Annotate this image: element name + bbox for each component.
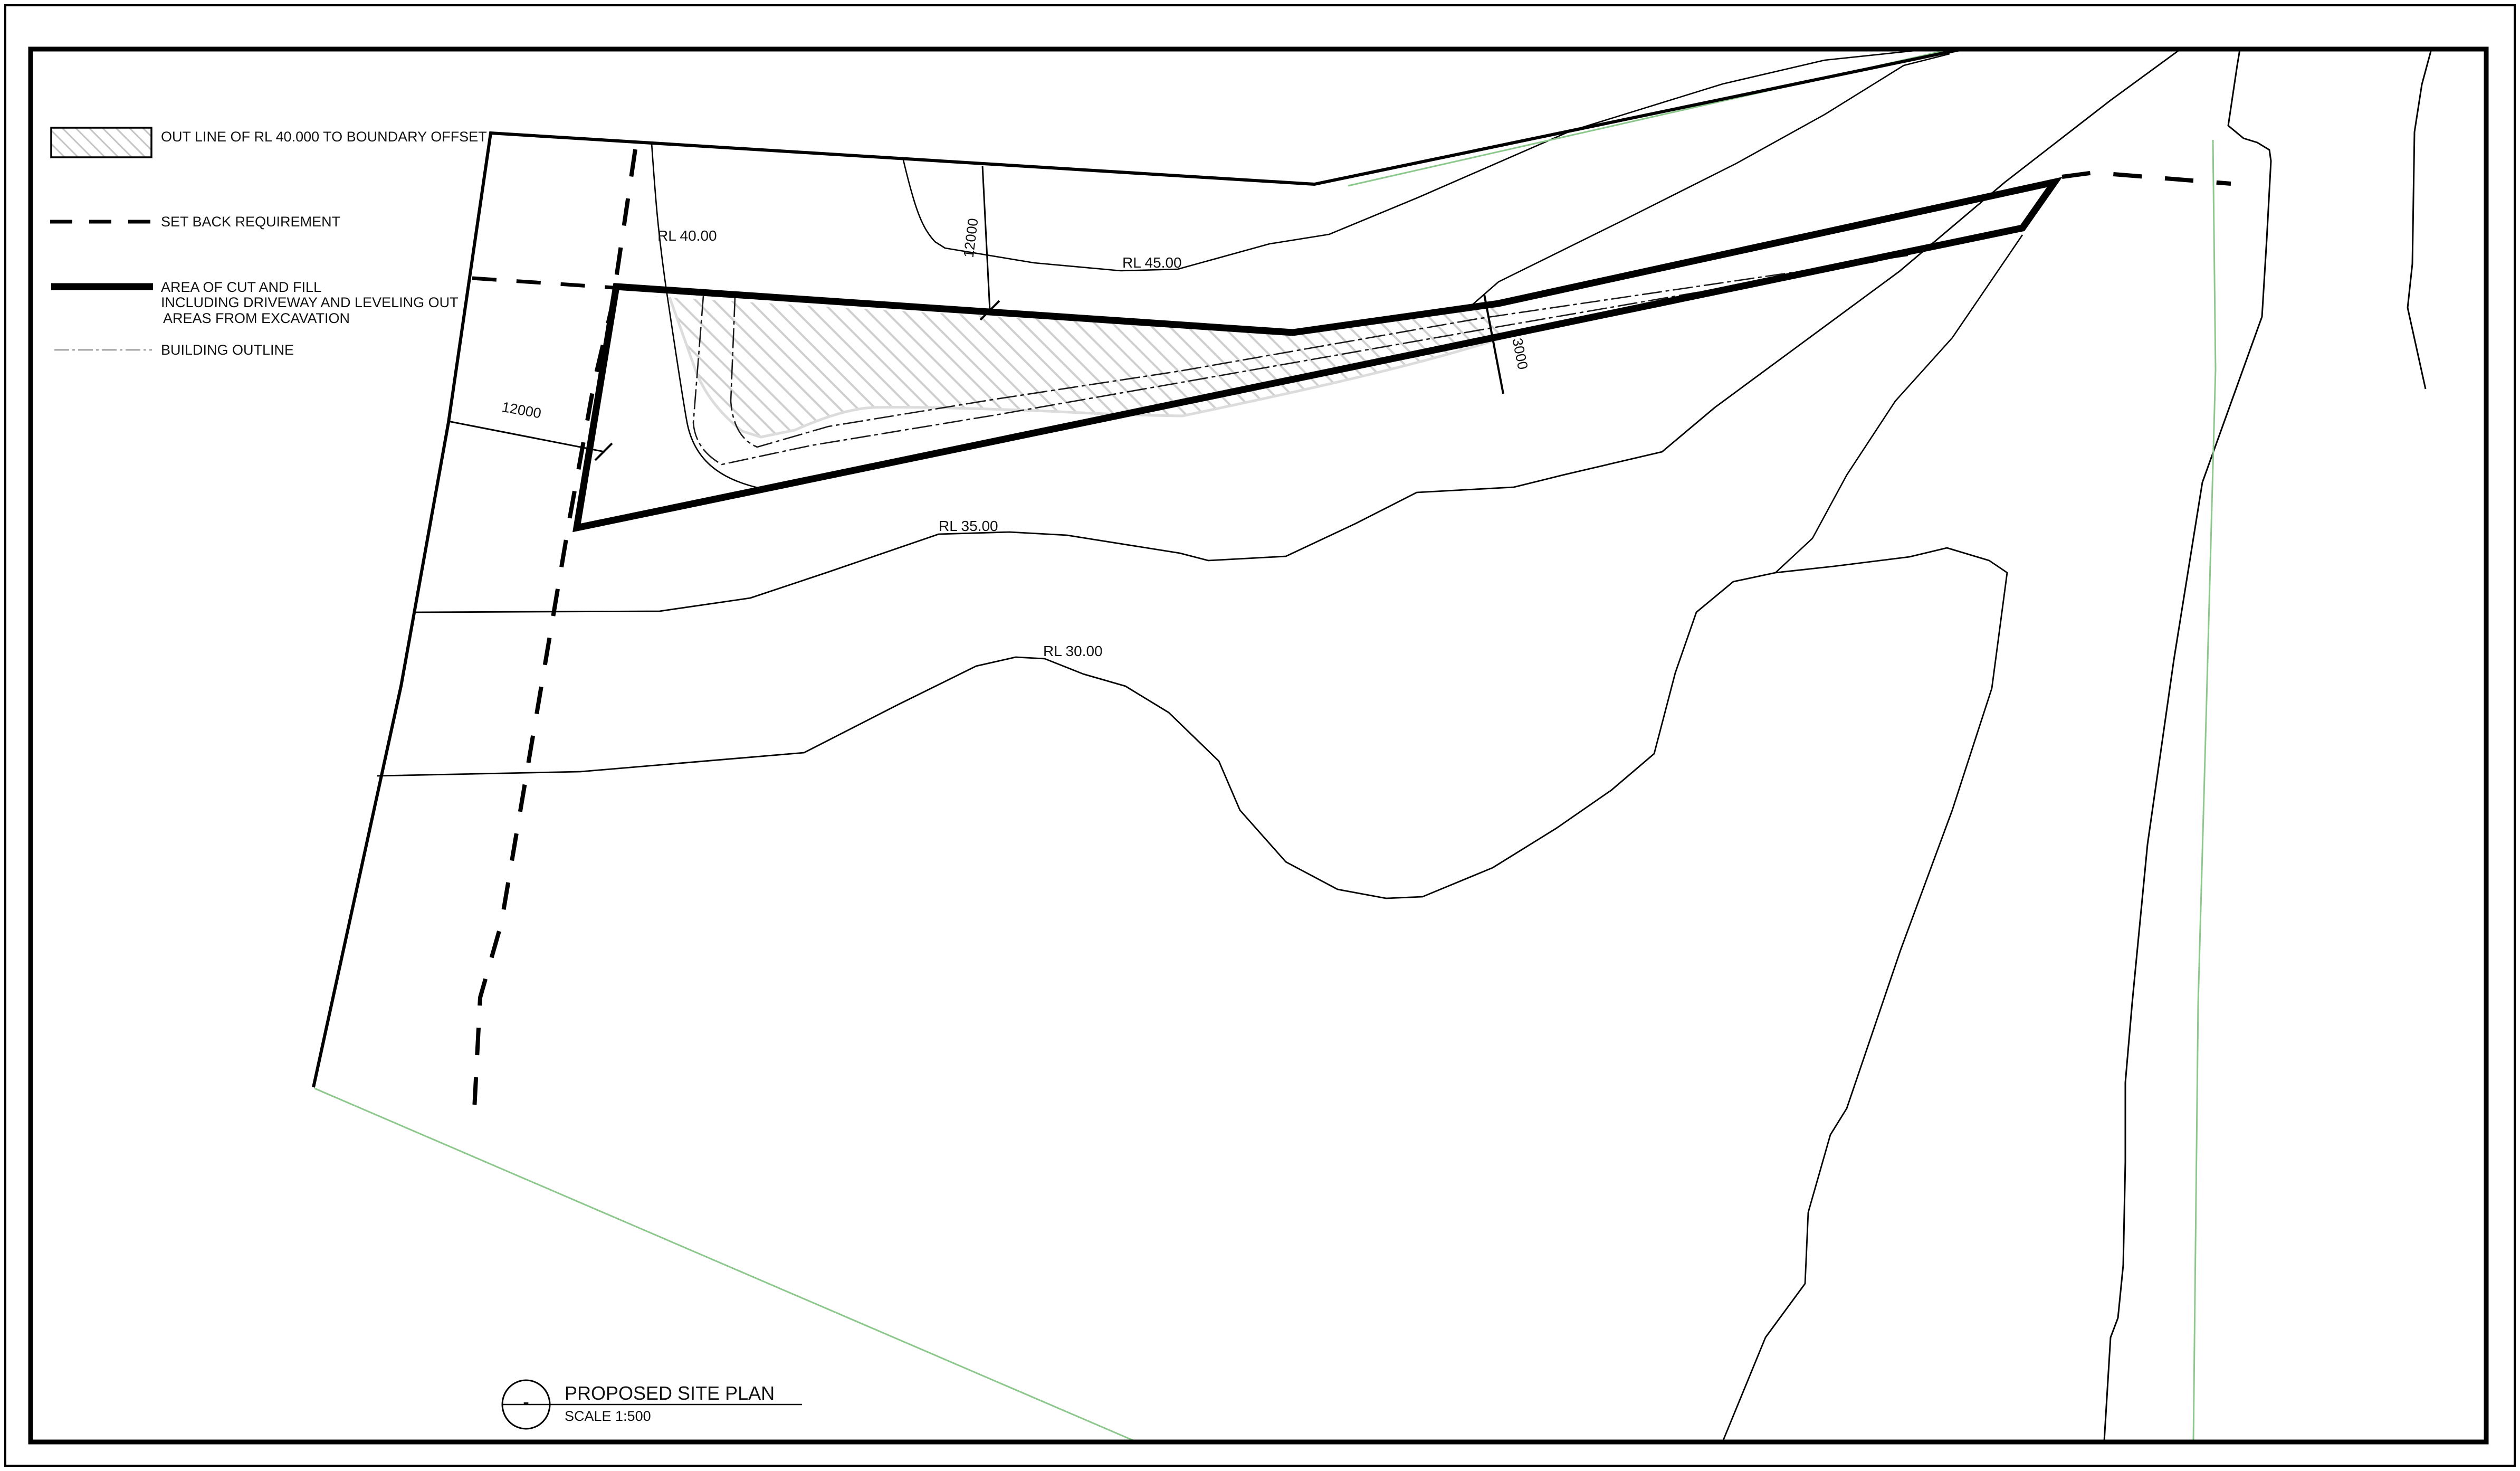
dimension-corridor-width-text: 3000 — [1509, 337, 1531, 371]
sheet-border-inner — [31, 49, 2486, 1442]
drawing-reference-symbol: - — [523, 1392, 529, 1412]
contour-label-rl40: RL 40.00 — [657, 227, 717, 244]
green-line-right — [2193, 140, 2216, 1441]
legend-label-setback: SET BACK REQUIREMENT — [161, 214, 340, 230]
dimension-left-offset-text: 12000 — [501, 399, 542, 422]
setback-dashed-horizontal — [472, 278, 614, 288]
page-title: PROPOSED SITE PLAN — [565, 1382, 775, 1404]
contour-label-rl45: RL 45.00 — [1122, 254, 1182, 271]
contour-rl40-right — [1473, 54, 1950, 304]
contour-label-rl30: RL 30.00 — [1043, 643, 1103, 659]
contour-rl30 — [377, 548, 2007, 1441]
title-block: - PROPOSED SITE PLAN SCALE 1:500 — [502, 1380, 802, 1429]
legend-label-cut-fill-line2: INCLUDING DRIVEWAY AND LEVELING OUT — [161, 295, 459, 310]
legend-label-building-outline: BUILDING OUTLINE — [161, 342, 294, 358]
legend-item-setback: SET BACK REQUIREMENT — [50, 214, 340, 230]
legend-label-cut-fill-line3: AREAS FROM EXCAVATION — [163, 310, 350, 326]
site-plan-canvas: 12000 12000 3000 RL 40.00 RL 45.00 RL 35… — [0, 0, 2520, 1471]
site-plan-page: 12000 12000 3000 RL 40.00 RL 45.00 RL 35… — [0, 0, 2520, 1471]
creek-line-left — [2104, 50, 2271, 1441]
hatched-box-icon — [51, 128, 151, 157]
legend-item-building-outline: BUILDING OUTLINE — [54, 342, 294, 358]
creek-line-right — [2408, 51, 2431, 389]
dimension-top-offset: 12000 — [961, 166, 999, 320]
contour-rl45 — [903, 50, 1920, 271]
setback-dashed-tip-right — [2062, 173, 2231, 184]
contour-rl30-spur — [1776, 235, 2022, 573]
setback-dashed-vertical — [474, 149, 635, 1119]
site-boundary-line — [313, 50, 1960, 1087]
legend-label-cut-fill-line1: AREA OF CUT AND FILL — [161, 279, 321, 295]
page-scale: SCALE 1:500 — [565, 1408, 651, 1424]
legend-item-rl40-offset: OUT LINE OF RL 40.000 TO BOUNDARY OFFSET — [51, 128, 487, 157]
sheet-border-outer — [5, 5, 2515, 1466]
legend: OUT LINE OF RL 40.000 TO BOUNDARY OFFSET… — [50, 128, 487, 358]
contour-label-rl35: RL 35.00 — [939, 518, 998, 534]
legend-item-cut-fill: AREA OF CUT AND FILL INCLUDING DRIVEWAY … — [51, 279, 459, 326]
legend-label-rl40-offset: OUT LINE OF RL 40.000 TO BOUNDARY OFFSET — [161, 129, 487, 145]
dimension-top-offset-text: 12000 — [961, 217, 981, 259]
